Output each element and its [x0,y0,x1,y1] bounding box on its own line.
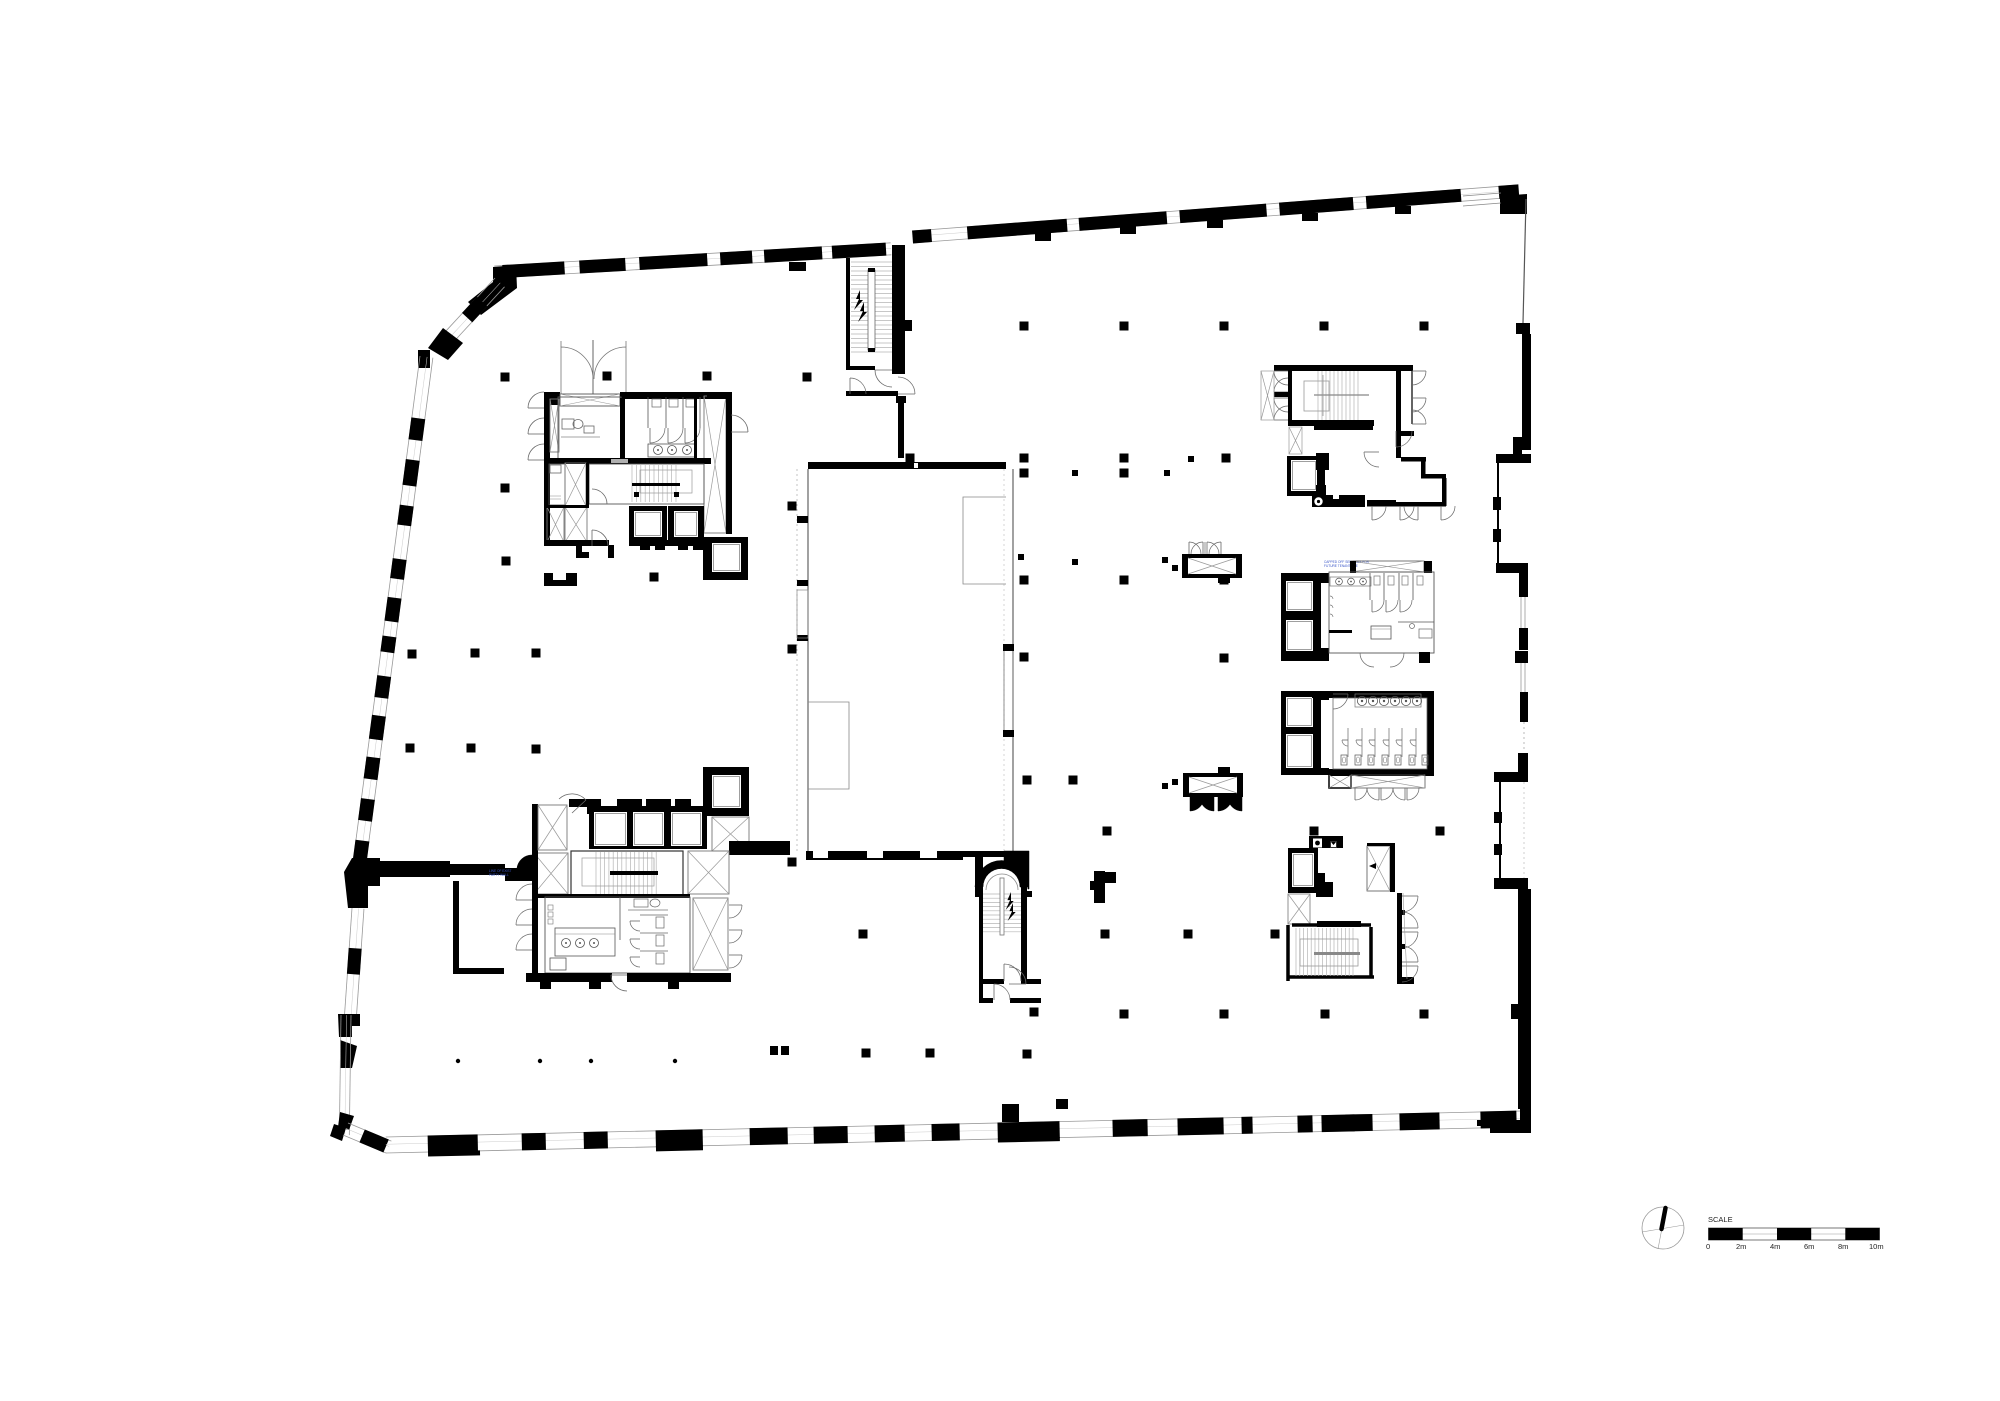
svg-text:SCALE: SCALE [1708,1215,1733,1224]
svg-text:8m: 8m [1838,1242,1848,1251]
svg-text:PARTY WALL: PARTY WALL [489,873,509,877]
svg-text:4m: 4m [1770,1242,1780,1251]
svg-text:2m: 2m [1736,1242,1746,1251]
svg-text:6m: 6m [1804,1242,1814,1251]
svg-text:10m: 10m [1869,1242,1884,1251]
svg-text:0: 0 [1706,1242,1710,1251]
